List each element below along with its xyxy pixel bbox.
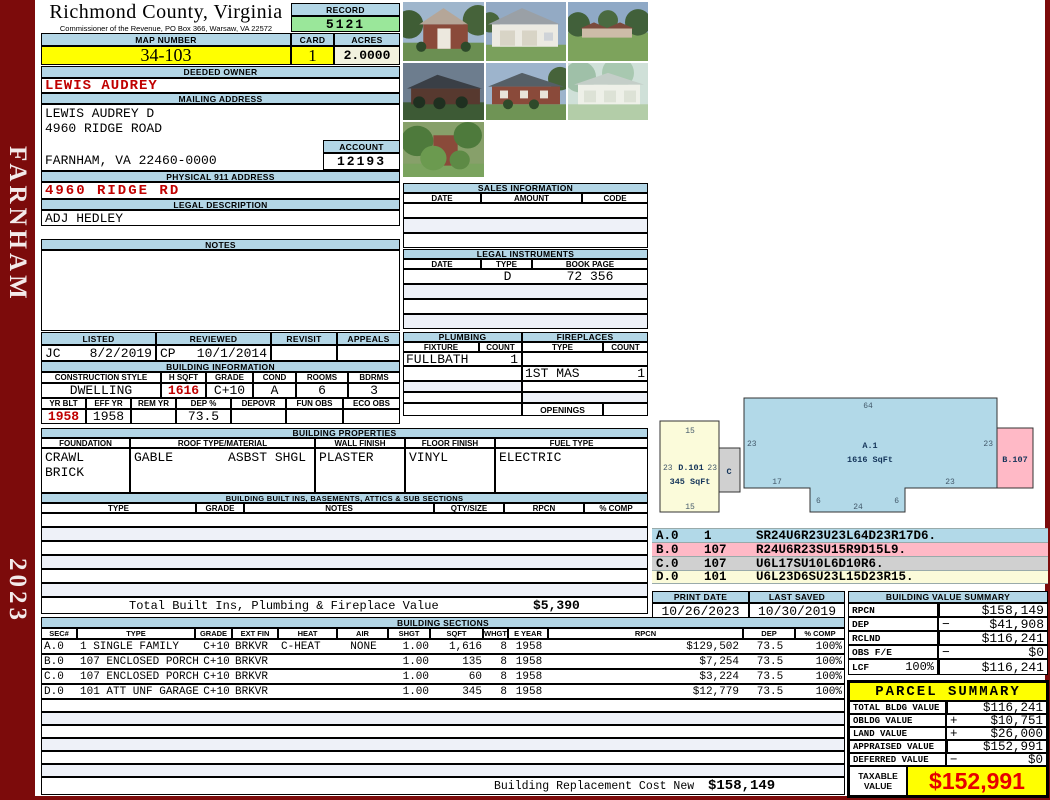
ps-value: $10,751 — [990, 714, 1043, 727]
heat: C-HEAT — [281, 640, 321, 653]
type: 107 ENCLOSED PORCH — [80, 655, 199, 668]
roof-label: ROOF TYPE/MATERIAL — [130, 438, 315, 448]
instruments-col-type: TYPE — [481, 259, 532, 269]
empty-row — [403, 403, 522, 416]
instruments-col-bookpage: BOOK PAGE — [532, 259, 648, 269]
reviewed-label: REVIEWED — [156, 332, 271, 345]
plumbing-row: FULLBATH 1 — [403, 352, 522, 366]
deeded-owner-label: DEEDED OWNER — [41, 66, 400, 78]
property-photo-6[interactable] — [568, 63, 648, 120]
sketch-d-sqft: 345 SqFt — [670, 477, 711, 487]
dim-d-right: 23 — [707, 464, 717, 473]
map-number-value: 34-103 — [41, 46, 291, 65]
dep: 73.5 — [744, 640, 796, 653]
empty-row — [41, 555, 648, 569]
plumbing-count: 1 — [480, 353, 518, 365]
whgt: 8 — [484, 640, 507, 653]
physical-address-value: 4960 RIDGE RD — [41, 182, 400, 199]
fireplaces-col-type: TYPE — [522, 342, 603, 352]
last-saved-label: LAST SAVED — [749, 591, 845, 603]
sec: A.0 — [44, 640, 64, 653]
mailing-city: FARNHAM, VA 22460-0000 — [45, 153, 217, 168]
empty-row — [41, 712, 845, 725]
effyr-value: 1958 — [86, 409, 131, 424]
sales-col-date: DATE — [403, 193, 481, 203]
ps-label-appraised: APPRAISED VALUE — [849, 740, 946, 753]
dim-a-top: 64 — [863, 402, 873, 411]
sketch-d-name: D.101 — [678, 463, 704, 473]
account-number: 12193 — [323, 153, 400, 170]
dep-value: 73.5 — [176, 409, 231, 424]
construction-style-label: CONSTRUCTION STYLE — [41, 372, 161, 383]
grade-value: C+10 — [206, 383, 253, 398]
ps-value-appraised: $152,991 — [946, 740, 1047, 753]
cond-label: COND — [253, 372, 296, 383]
empty-row — [403, 203, 648, 218]
empty-row — [403, 218, 648, 233]
sketch-a-name: A.1 — [862, 441, 877, 451]
bdrms-value: 3 — [348, 383, 400, 398]
dim-notch-right: 6 — [894, 497, 899, 506]
photo-brick-rancher — [486, 63, 566, 120]
fuel-label: FUEL TYPE — [495, 438, 648, 448]
grade: C+10 — [198, 685, 235, 698]
plumbing-col-count: COUNT — [479, 342, 522, 352]
acres-value: 2.0000 — [334, 46, 400, 65]
grade: C+10 — [198, 640, 235, 653]
sqft: 345 — [431, 685, 482, 698]
legend-sec: D.0 — [656, 571, 679, 583]
dim-a-left: 23 — [747, 440, 757, 449]
fireplace-row: 1ST MAS 1 — [522, 366, 648, 381]
empty-row — [403, 299, 648, 314]
legend-trace: SR24U6R23U23L64D23R17D6. — [756, 529, 936, 542]
built-ins-col-type: TYPE — [41, 503, 196, 513]
shgt: 1.00 — [389, 640, 429, 653]
empty-row — [403, 392, 522, 403]
year-label: 2023 — [3, 558, 31, 624]
built-ins-col-grade: GRADE — [196, 503, 244, 513]
fuel-type-value: ELECTRIC — [495, 448, 648, 493]
photo-garage-hazy — [568, 63, 648, 120]
yrblt-label: YR BLT — [41, 398, 86, 409]
reviewed-value: CP 10/1/2014 — [156, 345, 271, 361]
empty-row — [522, 392, 648, 403]
dep: 73.5 — [744, 655, 796, 668]
ps-value-deferred: − $0 — [946, 753, 1047, 766]
rooms-value: 6 — [296, 383, 348, 398]
built-ins-col-qty: QTY/SIZE — [434, 503, 504, 513]
built-ins-total-label: Total Built Ins, Plumbing & Fireplace Va… — [129, 598, 439, 613]
ext-fin: BRKVR — [235, 640, 268, 653]
legend-code: 107 — [704, 557, 727, 570]
physical-address-label: PHYSICAL 911 ADDRESS — [41, 171, 400, 182]
ext-fin: BRKVR — [235, 655, 268, 668]
built-ins-total-value: $5,390 — [533, 598, 580, 613]
air: NONE — [338, 640, 389, 653]
mailing-street: 4960 RIDGE ROAD — [45, 121, 162, 136]
sec: C.0 — [44, 670, 64, 683]
legend-trace: U6L23D6SU23L15D23R15. — [756, 571, 914, 583]
sales-col-amount: AMOUNT — [481, 193, 582, 203]
card-value: 1 — [291, 46, 334, 65]
replacement-cost-value: $158,149 — [708, 778, 775, 794]
remyr-value — [131, 409, 176, 424]
dep-label: DEP % — [176, 398, 231, 409]
built-ins-total-row: Total Built Ins, Plumbing & Fireplace Va… — [41, 597, 648, 614]
built-ins-col-rpcn: RPCN — [504, 503, 584, 513]
property-photo-3[interactable] — [568, 2, 648, 61]
construction-style-value: DWELLING — [41, 383, 161, 398]
property-photo-4[interactable] — [403, 63, 484, 120]
type: 1 SINGLE FAMILY — [80, 640, 179, 653]
empty-row — [41, 751, 845, 764]
dim-a-right: 23 — [983, 440, 993, 449]
dim-notch-bottom: 24 — [853, 503, 863, 512]
empty-row — [403, 381, 522, 392]
property-photo-7[interactable] — [403, 122, 484, 177]
ext-fin: BRKVR — [235, 670, 268, 683]
roof-type: GABLE — [134, 450, 173, 465]
sections-col-extfin: EXT FIN — [232, 628, 278, 639]
sections-col-sqft: SQFT — [430, 628, 483, 639]
taxable-label: TAXABLE VALUE — [849, 766, 907, 796]
ecoobs-label: ECO OBS — [343, 398, 400, 409]
openings-value — [603, 403, 648, 416]
effyr-label: EFF YR — [86, 398, 131, 409]
sketch-c-name: C — [726, 467, 731, 477]
county-title: Richmond County, Virginia — [41, 1, 291, 24]
eyear: 1958 — [509, 685, 549, 698]
dep: 73.5 — [744, 685, 796, 698]
foundation-line2: BRICK — [45, 465, 84, 480]
deeded-owner-value: LEWIS AUDREY — [41, 78, 400, 93]
wall-finish-value: PLASTER — [315, 448, 405, 493]
eyear: 1958 — [509, 655, 549, 668]
empty-row — [41, 569, 648, 583]
empty-row — [403, 314, 648, 329]
instrument-bookpage: 72 356 — [533, 270, 647, 283]
plumbing-title: PLUMBING — [403, 332, 522, 342]
sqft: 1,616 — [431, 640, 482, 653]
shgt: 1.00 — [389, 670, 429, 683]
photo-house-dark — [403, 63, 484, 120]
vs-lcf-pct: 100% — [905, 660, 934, 674]
legal-description-label: LEGAL DESCRIPTION — [41, 199, 400, 210]
ps-value-bldg: $116,241 — [946, 701, 1047, 714]
print-date-label: PRINT DATE — [652, 591, 749, 603]
vs-sign: − — [942, 645, 950, 659]
ps-sign: − — [950, 753, 958, 766]
empty-row — [41, 764, 845, 777]
wall-label: WALL FINISH — [315, 438, 405, 448]
appeals-value — [337, 345, 400, 361]
sketch-a-sqft: 1616 SqFt — [847, 455, 893, 465]
hsqft-value: 1616 — [161, 383, 206, 398]
ps-label-bldg: TOTAL BLDG VALUE — [849, 701, 946, 714]
section-row-c: C.0 107 ENCLOSED PORCH C+10 BRKVR 1.00 6… — [41, 669, 845, 684]
taxable-value: $152,991 — [907, 766, 1047, 796]
remyr-label: REM YR — [131, 398, 176, 409]
revisit-value — [271, 345, 337, 361]
vs-value: $158,149 — [982, 603, 1044, 617]
instruments-title: LEGAL INSTRUMENTS — [403, 249, 648, 259]
sec: B.0 — [44, 655, 64, 668]
sections-col-dep: DEP — [743, 628, 795, 639]
vs-value: $0 — [1028, 645, 1044, 659]
notes-box — [41, 250, 400, 331]
hsqft-label: H SQFT — [161, 372, 206, 383]
dim-d-left: 23 — [663, 464, 673, 473]
plumbing-fixture: FULLBATH — [406, 353, 468, 365]
photo-foliage — [403, 122, 484, 177]
roof-material: ASBST SHGL — [228, 450, 306, 465]
whgt: 8 — [484, 655, 507, 668]
listed-value: JC 8/2/2019 — [41, 345, 156, 361]
plumbing-col-fixture: FIXTURE — [403, 342, 479, 352]
notes-label: NOTES — [41, 239, 400, 250]
sections-col-sec: SEC# — [41, 628, 77, 639]
sections-col-eyear: E YEAR — [508, 628, 548, 639]
reviewed-date: 10/1/2014 — [197, 346, 267, 361]
ps-label-obldg: OBLDG VALUE — [849, 714, 946, 727]
grade-label: GRADE — [206, 372, 253, 383]
property-photo-2[interactable] — [486, 2, 566, 61]
empty-row — [41, 738, 845, 751]
sections-title: BUILDING SECTIONS — [41, 617, 845, 628]
openings-label: OPENINGS — [522, 403, 603, 416]
vs-lcf-label: LCF — [852, 662, 869, 673]
ps-value: $152,991 — [983, 740, 1043, 753]
mailing-name: LEWIS AUDREY D — [45, 106, 154, 121]
sales-col-code: CODE — [582, 193, 648, 203]
legend-row-a: A.0 1 SR24U6R23U23L64D23R17D6. — [652, 528, 1048, 542]
empty-row — [522, 352, 648, 366]
rpcn: $129,502 — [549, 640, 739, 653]
photo-house-lawn — [568, 2, 648, 61]
shgt: 1.00 — [389, 685, 429, 698]
legend-code: 101 — [704, 571, 727, 583]
legend-row-c: C.0 107 U6L17SU10L6D10R6. — [652, 556, 1048, 570]
card-label: CARD — [291, 33, 334, 46]
vs-label-dep: DEP — [848, 617, 938, 631]
vs-value-rclnd: $116,241 — [938, 631, 1048, 645]
record-label: RECORD — [291, 3, 400, 16]
cond-value: A — [253, 383, 296, 398]
comp: 100% — [796, 685, 842, 698]
vs-value-obs: − $0 — [938, 645, 1048, 659]
section-row-a: A.0 1 SINGLE FAMILY C+10 BRKVR C-HEAT NO… — [41, 639, 845, 654]
comp: 100% — [796, 640, 842, 653]
empty-row — [41, 527, 648, 541]
sec: D.0 — [44, 685, 64, 698]
dim-d-bottom: 15 — [685, 503, 695, 512]
vs-label-rpcn: RPCN — [848, 603, 938, 617]
dim-d-top: 15 — [685, 427, 695, 436]
sketch-b-name: B.107 — [1002, 455, 1028, 465]
shgt: 1.00 — [389, 655, 429, 668]
property-photo-5[interactable] — [486, 63, 566, 120]
vs-label-lcf: LCF 100% — [848, 659, 938, 675]
legend-code: 1 — [704, 529, 712, 542]
empty-row — [403, 284, 648, 299]
photo-shed — [403, 2, 484, 61]
sections-col-shgt: SHGT — [388, 628, 430, 639]
revisit-label: REVISIT — [271, 332, 337, 345]
eyear: 1958 — [509, 640, 549, 653]
legend-row-d: D.0 101 U6L23D6SU23L15D23R15. — [652, 570, 1048, 584]
eyear: 1958 — [509, 670, 549, 683]
acres-label: ACRES — [334, 33, 400, 46]
photo-garage — [486, 2, 566, 61]
ps-sign: + — [950, 714, 958, 727]
sections-col-type: TYPE — [77, 628, 195, 639]
vs-sign: − — [942, 617, 950, 631]
vs-value: $116,241 — [982, 631, 1044, 645]
ps-value: $0 — [1028, 753, 1043, 766]
legal-description-value: ADJ HEDLEY — [41, 210, 400, 226]
ps-value: $26,000 — [990, 727, 1043, 740]
vs-label-obs: OBS F/E — [848, 645, 938, 659]
sections-col-rpcn: RPCN — [548, 628, 743, 639]
commissioner-line: Commissioner of the Revenue, PO Box 366,… — [41, 24, 291, 33]
built-ins-col-comp: % COMP — [584, 503, 648, 513]
listed-label: LISTED — [41, 332, 156, 345]
instrument-row: D 72 356 — [403, 269, 648, 284]
floor-finish-value: VINYL — [405, 448, 495, 493]
listed-date: 8/2/2019 — [90, 346, 152, 361]
building-properties-title: BUILDING PROPERTIES — [41, 428, 648, 438]
county-header: Richmond County, Virginia Commissioner o… — [41, 1, 291, 32]
empty-row — [41, 699, 845, 712]
rooms-label: ROOMS — [296, 372, 348, 383]
bdrms-label: BDRMS — [348, 372, 400, 383]
empty-row — [522, 381, 648, 392]
empty-row — [41, 541, 648, 555]
legend-sec: B.0 — [656, 543, 679, 556]
district-sidebar: FARNHAM 2023 — [0, 0, 35, 800]
section-row-b: B.0 107 ENCLOSED PORCH C+10 BRKVR 1.00 1… — [41, 654, 845, 669]
empty-row — [41, 725, 845, 738]
vs-value-lcf: $116,241 — [938, 659, 1048, 675]
sections-col-comp: % COMP — [795, 628, 845, 639]
ps-sign: + — [950, 727, 958, 740]
foundation-label: FOUNDATION — [41, 438, 130, 448]
fireplaces-title: FIREPLACES — [522, 332, 648, 342]
instrument-type: D — [482, 270, 533, 283]
whgt: 8 — [484, 685, 507, 698]
dim-a-bottom-left: 17 — [772, 478, 782, 487]
roof-value: GABLE ASBST SHGL — [130, 448, 315, 493]
account-label: ACCOUNT — [323, 140, 400, 153]
legend-code: 107 — [704, 543, 727, 556]
sections-col-grade: GRADE — [195, 628, 232, 639]
reviewed-by: CP — [160, 346, 176, 361]
sqft: 135 — [431, 655, 482, 668]
rpcn: $12,779 — [549, 685, 739, 698]
record-number: 5121 — [291, 16, 400, 32]
empty-row — [403, 233, 648, 248]
legend-trace: U6L17SU10L6D10R6. — [756, 557, 884, 570]
map-number-label: MAP NUMBER — [41, 33, 291, 46]
legend-row-b: B.0 107 R24U6R23SU15R9D15L9. — [652, 542, 1048, 556]
vs-value-rpcn: $158,149 — [938, 603, 1048, 617]
vs-value: $41,908 — [989, 617, 1044, 631]
funobs-value — [286, 409, 343, 424]
funobs-label: FUN OBS — [286, 398, 343, 409]
vs-label-rclnd: RCLND — [848, 631, 938, 645]
replacement-cost-label: Building Replacement Cost New — [494, 778, 694, 794]
rpcn: $7,254 — [549, 655, 739, 668]
built-ins-title: BUILDING BUILT INS, BASEMENTS, ATTICS & … — [41, 493, 648, 503]
sqft: 60 — [431, 670, 482, 683]
dim-notch-left: 6 — [816, 497, 821, 506]
sections-col-heat: HEAT — [278, 628, 337, 639]
building-info-title: BUILDING INFORMATION — [41, 361, 400, 372]
whgt: 8 — [484, 670, 507, 683]
district-label: FARNHAM — [3, 146, 31, 303]
grade: C+10 — [198, 655, 235, 668]
section-row-d: D.0 101 ATT UNF GARAGE C+10 BRKVR 1.00 3… — [41, 684, 845, 699]
fireplace-type: 1ST MAS — [525, 367, 580, 380]
ps-value-land: + $26,000 — [946, 727, 1047, 740]
legend-sec: C.0 — [656, 557, 679, 570]
foundation-line1: CRAWL — [45, 450, 84, 465]
depovr-value — [231, 409, 286, 424]
listed-by: JC — [45, 346, 61, 361]
depovr-label: DEPOVR — [231, 398, 286, 409]
sales-title: SALES INFORMATION — [403, 183, 648, 193]
empty-row — [41, 583, 648, 597]
type: 101 ATT UNF GARAGE — [80, 685, 199, 698]
fireplaces-col-count: COUNT — [603, 342, 648, 352]
ps-label-land: LAND VALUE — [849, 727, 946, 740]
parcel-summary-title: PARCEL SUMMARY — [849, 682, 1047, 701]
legend-trace: R24U6R23SU15R9D15L9. — [756, 543, 906, 556]
instruments-col-date: DATE — [403, 259, 481, 269]
ecoobs-value — [343, 409, 400, 424]
type: 107 ENCLOSED PORCH — [80, 670, 199, 683]
ps-value-obldg: + $10,751 — [946, 714, 1047, 727]
empty-row — [403, 366, 522, 381]
dep: 73.5 — [744, 670, 796, 683]
value-summary-title: BUILDING VALUE SUMMARY — [848, 591, 1048, 603]
ps-value: $116,241 — [983, 701, 1043, 714]
rpcn: $3,224 — [549, 670, 739, 683]
foundation-value: CRAWL BRICK — [41, 448, 130, 493]
fireplace-count: 1 — [603, 367, 645, 380]
built-ins-col-notes: NOTES — [244, 503, 434, 513]
ext-fin: BRKVR — [235, 685, 268, 698]
floor-label: FLOOR FINISH — [405, 438, 495, 448]
building-sketch: 64 23 23 A.1 1616 SqFt 17 23 6 24 6 15 2… — [653, 385, 1050, 520]
sections-col-air: AIR — [337, 628, 388, 639]
property-photo-1[interactable] — [403, 2, 484, 61]
vs-value-dep: − $41,908 — [938, 617, 1048, 631]
legend-sec: A.0 — [656, 529, 679, 542]
grade: C+10 — [198, 670, 235, 683]
yrblt-value: 1958 — [41, 409, 86, 424]
empty-row — [41, 513, 648, 527]
ps-label-deferred: DEFERRED VALUE — [849, 753, 946, 766]
appeals-label: APPEALS — [337, 332, 400, 345]
mailing-address-label: MAILING ADDRESS — [41, 93, 400, 104]
replacement-cost-row: Building Replacement Cost New $158,149 — [41, 777, 845, 795]
comp: 100% — [796, 655, 842, 668]
comp: 100% — [796, 670, 842, 683]
dim-a-bottom-right: 23 — [945, 478, 955, 487]
sections-col-whgt: WHGT — [483, 628, 508, 639]
